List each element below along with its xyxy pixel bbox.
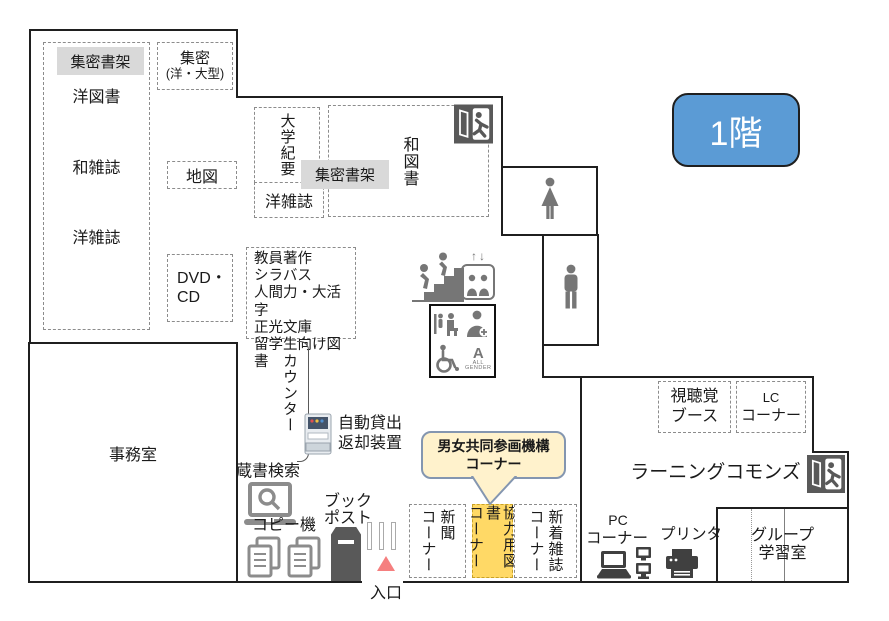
emergency-exit-icon xyxy=(454,104,493,144)
dense-stacks2-highlight: 集密書架 xyxy=(301,160,389,189)
group-study-label-2: 学習室 xyxy=(758,545,806,563)
new-magazines-line1: 新着雑誌 xyxy=(546,509,565,573)
emergency-exit-icon xyxy=(807,454,845,494)
dense-stacks2-label: 集密書架 xyxy=(315,164,375,185)
elevator-icon: ↑↓ xyxy=(461,250,497,302)
all-gender-text: A ALL GENDER xyxy=(465,346,492,372)
ostomate-icon xyxy=(465,310,491,338)
wall-bottom-mid xyxy=(403,581,582,583)
entrance-gate-bar xyxy=(391,522,396,550)
dense-western-large-line1: 集密 xyxy=(180,50,210,67)
dense-stacks-label: 集密書架 xyxy=(70,51,130,72)
entrance-label: 入口 xyxy=(364,585,408,603)
map-label: 地図 xyxy=(186,163,218,187)
group-room-divider-dotted xyxy=(751,509,752,581)
faculty-line-1: シラバス xyxy=(254,268,355,285)
western-magazines-label: 洋雑誌 xyxy=(43,230,150,248)
lc-corner-line1: LC xyxy=(763,390,780,406)
gender-equality-callout: 男女共同参画機構 コーナー xyxy=(421,431,566,479)
callout-line1: 男女共同参画機構 xyxy=(438,437,550,455)
opac-label: 蔵書検索 xyxy=(236,463,300,481)
cooperation-books-line2: コーナー xyxy=(467,505,484,577)
callout-tail xyxy=(468,476,520,506)
newspaper-corner-box: 新聞 コーナー xyxy=(409,504,466,578)
wall-below-toilet xyxy=(542,344,544,378)
wall-top-left xyxy=(29,29,238,31)
cooperation-books-line1: 協力用図書 xyxy=(484,505,518,577)
western-books-label: 洋図書 xyxy=(43,89,150,107)
left-stacks-area xyxy=(43,42,150,330)
self-checkout-machine-icon xyxy=(304,413,332,455)
baby-care-icon xyxy=(433,310,461,338)
av-booth-line1: 視聴覚 xyxy=(670,387,718,407)
male-toilet-icon xyxy=(559,264,583,316)
printer-icon xyxy=(663,548,701,580)
stairs-icon xyxy=(412,252,464,306)
all-gender-line2: GENDER xyxy=(465,366,492,372)
wall-commons-left xyxy=(580,376,582,583)
dense-stacks-highlight: 集密書架 xyxy=(57,47,144,75)
univ-bulletin-label: 大学紀要 xyxy=(277,113,298,177)
copier-label: コピー機 xyxy=(252,517,316,535)
map-box: 地図 xyxy=(167,161,237,189)
dvd-label-2: CD xyxy=(177,288,232,307)
pc-corner-label-1: PC xyxy=(596,511,640,529)
wall-commons-top xyxy=(542,376,814,378)
printer-label: プリンタ xyxy=(660,526,722,544)
self-checkout-label-2: 返却装置 xyxy=(338,434,402,454)
faculty-collection-box: 教員著作 シラバス 人間力・大活字 正光文庫 留学生向け図書 xyxy=(246,247,356,339)
newspaper-corner-line1: 新聞 xyxy=(438,509,457,573)
jp-magazines-label: 和雑誌 xyxy=(43,160,150,178)
floor-badge: 1階 xyxy=(672,93,800,167)
bookpost-icon xyxy=(331,527,361,581)
newspaper-corner-line2: コーナー xyxy=(419,509,438,573)
accessible-toilet-sign: A ALL GENDER xyxy=(429,304,496,378)
elevator-arrows: ↑↓ xyxy=(461,250,497,262)
entrance-arrow-icon xyxy=(377,556,395,571)
dense-western-large-line2: (洋・大型) xyxy=(166,67,224,82)
faculty-line-3: 正光文庫 xyxy=(254,320,355,337)
self-checkout-label-1: 自動貸出 xyxy=(338,414,402,434)
bookpost-label-1: ブック xyxy=(318,493,378,510)
group-study-room: グループ 学習室 xyxy=(716,507,849,583)
lc-corner-box: LC コーナー xyxy=(736,381,806,433)
wall-right-upper xyxy=(501,96,503,168)
lc-corner-line2: コーナー xyxy=(741,406,801,425)
wall-commons-step xyxy=(812,451,849,453)
faculty-line-2: 人間力・大活字 xyxy=(254,285,355,319)
callout-line2: コーナー xyxy=(466,455,522,473)
pc-laptop-icon xyxy=(595,550,633,580)
dense-western-large-box: 集密 (洋・大型) xyxy=(157,42,233,90)
wall-top-mid xyxy=(236,96,503,98)
new-magazines-line2: コーナー xyxy=(527,509,546,573)
learning-commons-label: ラーニングコモンズ xyxy=(628,464,803,482)
dvd-cd-box: DVD・ CD xyxy=(167,254,233,322)
jp-books-label: 和図書 xyxy=(397,136,421,187)
dvd-label-1: DVD・ xyxy=(177,269,232,288)
female-toilet-icon xyxy=(538,177,562,225)
bookpost-slot xyxy=(338,540,354,544)
western-magazines2-label: 洋雑誌 xyxy=(265,188,313,212)
pc-monitors-icon xyxy=(634,546,654,582)
floor-map-1f: 事務室 グループ 学習室 集密書架 洋図書 和雑誌 洋雑誌 集密 (洋・大型) … xyxy=(0,0,889,621)
group-study-label-1: グループ xyxy=(751,527,814,545)
wall-commons-right-upper xyxy=(812,376,814,453)
wall-step-v xyxy=(236,29,238,98)
floor-badge-label: 1階 xyxy=(710,106,763,155)
entrance-gate-bar xyxy=(367,522,372,550)
office-label: 事務室 xyxy=(28,447,238,465)
copier-icon xyxy=(245,536,325,582)
entrance-gate-bar xyxy=(379,522,384,550)
wheelchair-icon xyxy=(433,344,461,374)
av-booth-box: 視聴覚 ブース xyxy=(658,381,731,433)
av-booth-line2: ブース xyxy=(671,407,718,427)
cooperation-books-corner-box: 協力用図書 コーナー xyxy=(472,504,513,578)
faculty-line-0: 教員著作 xyxy=(254,251,355,268)
all-gender-a: A xyxy=(465,346,492,361)
new-magazines-corner-box: 新着雑誌 コーナー xyxy=(514,504,577,578)
